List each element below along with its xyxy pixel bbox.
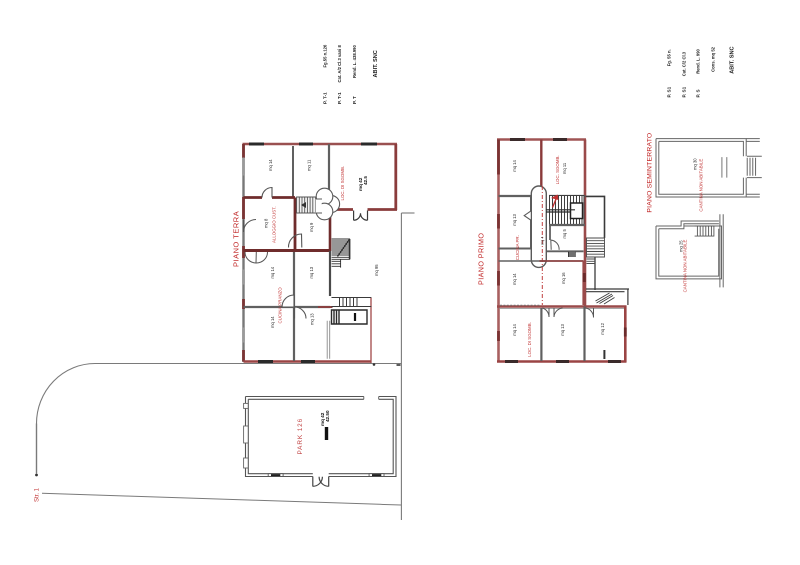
svg-text:Cat. A/2 Cl.3 vani 8: Cat. A/2 Cl.3 vani 8 bbox=[337, 45, 342, 83]
svg-text:Fg. 55 n.: Fg. 55 n. bbox=[667, 49, 672, 66]
svg-text:mq 9: mq 9 bbox=[309, 222, 314, 232]
svg-text:CUCINA PRANZO: CUCINA PRANZO bbox=[278, 287, 283, 324]
svg-text:Fg.55 n.126: Fg.55 n.126 bbox=[323, 44, 328, 67]
svg-text:mq 13: mq 13 bbox=[309, 266, 314, 278]
svg-text:P. T-1: P. T-1 bbox=[323, 92, 328, 104]
svg-text:mq 16: mq 16 bbox=[561, 272, 566, 284]
svg-text:PIANO TERRA: PIANO TERRA bbox=[232, 211, 241, 267]
svg-text:P. S1: P. S1 bbox=[682, 86, 687, 97]
svg-text:LOC. DI SGOMB.: LOC. DI SGOMB. bbox=[340, 166, 345, 201]
svg-text:mq 13: mq 13 bbox=[310, 313, 315, 325]
svg-text:mq 14: mq 14 bbox=[268, 159, 273, 171]
svg-text:Rend. L. 438.990: Rend. L. 438.990 bbox=[352, 45, 357, 78]
svg-text:LOC. DI SGOMB.: LOC. DI SGOMB. bbox=[527, 322, 532, 357]
svg-text:P. S: P. S bbox=[696, 89, 701, 97]
svg-text:mq 30: mq 30 bbox=[693, 158, 698, 170]
svg-text:ABIT. SNC: ABIT. SNC bbox=[730, 46, 736, 73]
svg-text:PIANO PRIMO: PIANO PRIMO bbox=[477, 233, 486, 285]
svg-text:CUCINA PR.: CUCINA PR. bbox=[515, 235, 520, 260]
svg-text:Str. 1: Str. 1 bbox=[35, 487, 41, 502]
svg-text:ALLOGGIO CUST.: ALLOGGIO CUST. bbox=[272, 206, 277, 243]
svg-text:mq 11: mq 11 bbox=[562, 162, 567, 174]
svg-text:Cons. mq 52: Cons. mq 52 bbox=[711, 46, 716, 72]
svg-text:mq 14: mq 14 bbox=[270, 316, 275, 328]
svg-text:mq 11: mq 11 bbox=[307, 159, 312, 171]
svg-text:mq 14: mq 14 bbox=[512, 323, 517, 335]
svg-text:42.5: 42.5 bbox=[363, 176, 368, 185]
svg-text:P. T-1: P. T-1 bbox=[337, 92, 342, 104]
svg-text:mq 4: mq 4 bbox=[541, 237, 545, 245]
svg-text:mq 5: mq 5 bbox=[562, 229, 567, 239]
svg-text:Cat. C/2 Cl.3: Cat. C/2 Cl.3 bbox=[682, 51, 687, 76]
svg-text:mq 12: mq 12 bbox=[600, 322, 605, 334]
svg-text:Rend. L. 990: Rend. L. 990 bbox=[696, 48, 701, 73]
svg-text:mq 13: mq 13 bbox=[512, 213, 517, 225]
svg-text:mq 13: mq 13 bbox=[560, 323, 565, 335]
svg-text:P. S1: P. S1 bbox=[667, 86, 672, 97]
svg-text:CANTINA NON ABITABILE: CANTINA NON ABITABILE bbox=[699, 159, 704, 212]
svg-text:mq 14: mq 14 bbox=[512, 159, 517, 171]
svg-text:mq 14: mq 14 bbox=[512, 273, 517, 285]
svg-text:LOC. SGOMB.: LOC. SGOMB. bbox=[555, 155, 560, 184]
svg-text:mq 14: mq 14 bbox=[270, 266, 275, 278]
svg-text:mq 8: mq 8 bbox=[264, 218, 269, 228]
svg-text:PIANO SEMINTERRATO: PIANO SEMINTERRATO bbox=[647, 133, 654, 213]
svg-text:CANTINA NON ABITABILE: CANTINA NON ABITABILE bbox=[683, 239, 688, 292]
svg-text:ABIT. SNC: ABIT. SNC bbox=[373, 50, 379, 77]
svg-text:42.50: 42.50 bbox=[325, 410, 330, 422]
svg-text:PARK 126: PARK 126 bbox=[297, 418, 304, 455]
svg-text:mq 95: mq 95 bbox=[374, 264, 379, 276]
svg-text:P. T: P. T bbox=[352, 96, 357, 104]
